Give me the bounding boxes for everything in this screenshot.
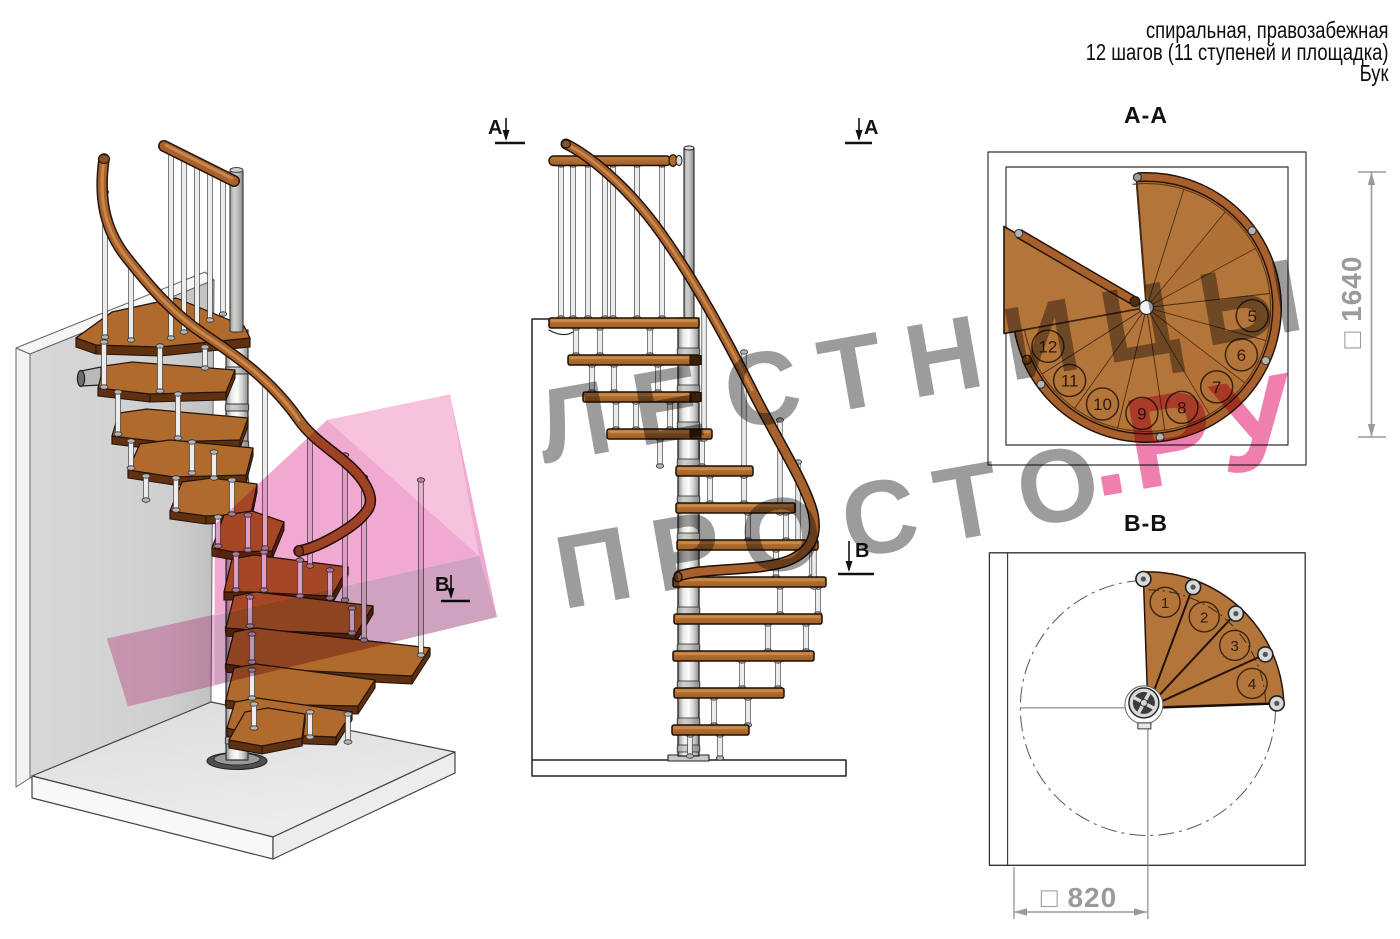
svg-text:□ 1640: □ 1640 — [1336, 256, 1367, 349]
svg-text:А-А: А-А — [1124, 102, 1168, 128]
svg-text:□ 820: □ 820 — [1041, 882, 1117, 913]
svg-text:3: 3 — [1231, 638, 1239, 655]
svg-text:1: 1 — [1161, 595, 1169, 612]
svg-text:4: 4 — [1248, 676, 1256, 693]
svg-text:2: 2 — [1200, 609, 1208, 626]
svg-text:A: A — [488, 117, 502, 139]
svg-text:A: A — [864, 117, 878, 139]
